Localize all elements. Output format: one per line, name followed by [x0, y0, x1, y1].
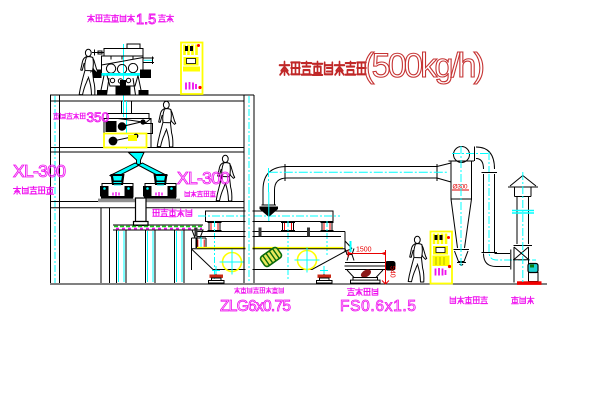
- svg-text:1500: 1500: [356, 247, 372, 254]
- svg-text:540: 540: [389, 266, 396, 278]
- svg-text:Ø300: Ø300: [453, 184, 468, 191]
- svg-text:(500kg/h): (500kg/h): [363, 47, 485, 85]
- svg-text:XL-300: XL-300: [177, 168, 230, 188]
- svg-text:1.5: 1.5: [136, 12, 156, 28]
- svg-text:XL-300: XL-300: [13, 161, 66, 181]
- svg-text:350: 350: [87, 110, 110, 125]
- svg-text:ZLG6x0.75: ZLG6x0.75: [220, 298, 291, 315]
- svg-text:FS0.6x1.5: FS0.6x1.5: [340, 298, 416, 315]
